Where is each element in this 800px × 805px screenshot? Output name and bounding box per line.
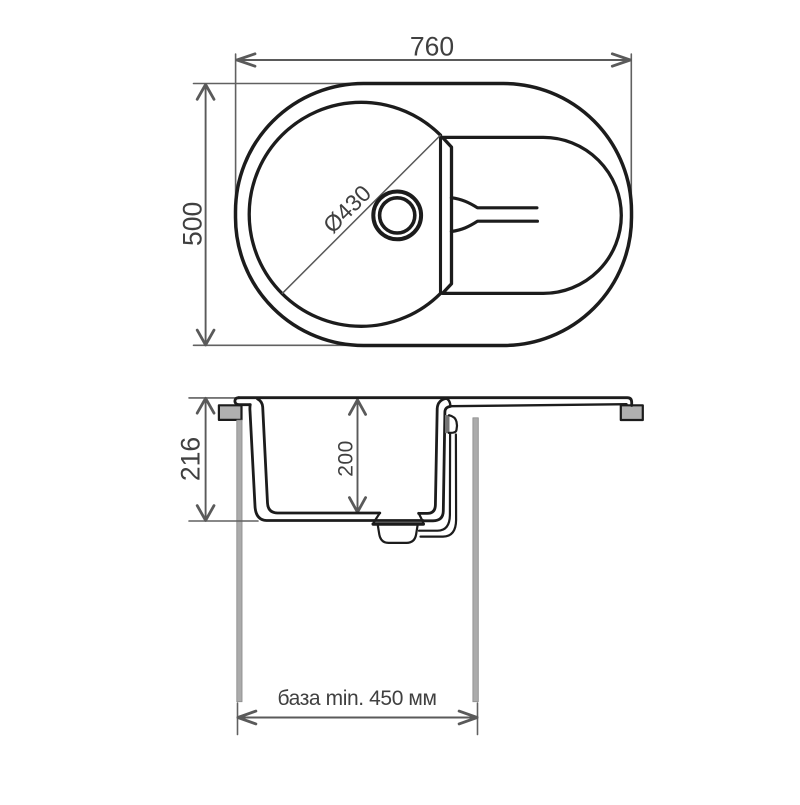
svg-text:200: 200 (335, 440, 358, 477)
svg-text:216: 216 (176, 437, 206, 481)
svg-text:база min. 450 мм: база min. 450 мм (278, 687, 437, 710)
svg-text:760: 760 (410, 32, 454, 62)
svg-text:500: 500 (178, 202, 208, 246)
